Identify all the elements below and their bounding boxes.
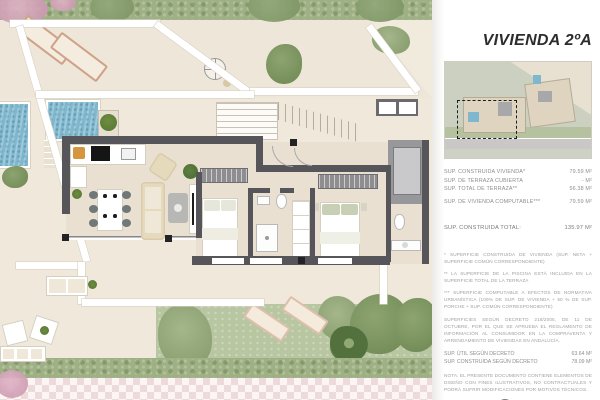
decree-value: 63.64 M² (572, 351, 592, 357)
surface-value: 79.59 M² (570, 169, 592, 176)
floor-plan (0, 0, 432, 400)
surface-total-label: SUP. CONSTRUIDA TOTAL: (444, 225, 521, 231)
dining-table (97, 189, 123, 231)
surface-row: SUP. DE TERRAZA CUBIERTA - M² (444, 178, 592, 185)
terrace-wall (82, 299, 264, 306)
surface-value: 79.59 M² (570, 199, 592, 206)
decree-label: SUP. ÚTIL SEGÚN DECRETO (444, 351, 515, 357)
bush-icon (266, 44, 302, 84)
page-title: VIVIENDA 2ºA (440, 32, 592, 50)
plate-icon (113, 194, 117, 198)
decree-label: SUP. CONSTRUIDA SEGÚN DECRETO (444, 359, 538, 365)
sofa-cushion (145, 187, 161, 209)
plate-icon (103, 194, 107, 198)
surface-label: SUP. DE TERRAZA CUBIERTA (444, 178, 523, 185)
column (290, 139, 297, 146)
nota-text: NOTA: EL PRESENTE DOCUMENTO CONTIENE ELE… (444, 372, 592, 393)
site-pool (533, 75, 542, 84)
surface-value: 56.38 M² (570, 186, 592, 193)
wall (62, 136, 70, 214)
pillow-icon (322, 204, 340, 215)
pillow-icon (221, 200, 236, 211)
boundary-wall (250, 88, 418, 95)
surface-label: SUP. TOTAL DE TERRAZA** (444, 186, 517, 193)
column (298, 257, 305, 264)
nightstand-icon (361, 203, 367, 211)
wall (422, 140, 429, 264)
surface-total-row: SUP. CONSTRUIDA TOTAL: 135.97 M² (444, 225, 592, 231)
sofa-cushion (145, 211, 161, 233)
wardrobe (200, 168, 248, 183)
paved-path (0, 378, 432, 400)
site-plan-thumbnail (444, 61, 592, 159)
wardrobe (318, 174, 378, 189)
blanket-icon (202, 228, 238, 240)
sofa-cushion (3, 349, 14, 359)
toilet-icon (276, 194, 287, 209)
terrace-wall (16, 262, 82, 269)
surface-label: SUP. DE VIVIENDA COMPUTABLE*** (444, 199, 540, 206)
surface-value: - M² (582, 178, 592, 185)
neighbor-pool (0, 102, 30, 168)
surface-info-column: SUP. CONSTRUIDA VIVIENDA* 79.59 M² SUP. … (444, 169, 592, 400)
surface-row: SUP. DE VIVIENDA COMPUTABLE*** 79.59 M² (444, 199, 592, 206)
brochure-page: VIVIENDA 2ºA SUP. CONSTRUIDA VIVIENDA* 7… (0, 0, 600, 400)
window-pane (318, 258, 352, 264)
pergola (216, 102, 278, 140)
basin-icon (402, 242, 408, 248)
shower-drain-icon (265, 236, 269, 240)
planter-bush-icon (100, 114, 117, 131)
chair-icon (89, 205, 98, 213)
outdoor-armchair (2, 320, 29, 347)
window-pane (250, 258, 282, 264)
plant-icon (72, 189, 82, 199)
site-building (524, 78, 576, 128)
closet (292, 200, 310, 258)
chair-icon (122, 205, 131, 213)
elevator-cab (393, 147, 421, 195)
wall (248, 188, 270, 193)
plant-icon (40, 326, 49, 335)
blanket-icon (320, 232, 360, 244)
bush-icon (394, 298, 432, 352)
footnote: *** SUPERFICIE COMPUTABLE A EFECTOS DE N… (444, 289, 592, 310)
chair-icon (122, 191, 131, 199)
decor-icon (174, 204, 182, 212)
sofa-cushion (17, 349, 28, 359)
window-strip (376, 99, 418, 116)
plate-icon (113, 214, 117, 218)
glass-wall (66, 236, 196, 240)
footnote: * SUPERFICIE CONSTRUIDA DE VIVIENDA (SUP… (444, 251, 592, 265)
decree-value: 78.09 M² (572, 359, 592, 365)
page-fold-shadow (432, 0, 444, 400)
chair-icon (89, 219, 98, 227)
plate-icon (103, 214, 107, 218)
wall (256, 165, 386, 172)
hedge-bottom (0, 358, 432, 380)
pillow-icon (341, 204, 358, 215)
footnote: ** LA SUPERFICIE DE LA PISCINA ESTÁ INCL… (444, 270, 592, 284)
footnotes: * SUPERFICIE CONSTRUIDA DE VIVIENDA (SUP… (444, 251, 592, 309)
decree-note: SUPERFICIES SEGÚN DECRETO 218/2005, DE 1… (444, 316, 592, 344)
column (62, 234, 69, 241)
site-roof-detail (538, 91, 551, 103)
wall (386, 165, 391, 262)
window-pane (379, 102, 396, 114)
outdoor-staircase (278, 102, 358, 142)
wall (62, 136, 262, 144)
fridge-cabinet (70, 166, 87, 188)
tv-icon (192, 193, 195, 225)
washbasin-icon (257, 196, 270, 205)
cooktop-icon (91, 146, 110, 161)
wall (248, 190, 253, 260)
site-verge (445, 149, 591, 158)
bush-icon (2, 166, 28, 188)
pillow-icon (204, 200, 220, 211)
decree-row: SUP. CONSTRUIDA SEGÚN DECRETO 78.09 M² (444, 359, 592, 365)
plant-icon (88, 280, 97, 289)
cutting-board-icon (73, 147, 85, 159)
boundary-wall (10, 20, 160, 27)
sofa-cushion (49, 279, 66, 293)
surface-row: SUP. TOTAL DE TERRAZA** 56.38 M² (444, 186, 592, 193)
wall (196, 172, 202, 238)
terrace-wall (36, 91, 254, 98)
window-pane (399, 102, 416, 114)
decree-rows: SUP. ÚTIL SEGÚN DECRETO 63.64 M² SUP. CO… (444, 351, 592, 365)
column (165, 235, 172, 242)
sink-icon (121, 148, 136, 160)
surface-label: SUP. CONSTRUIDA VIVIENDA* (444, 169, 525, 176)
sofa-cushion (31, 349, 42, 359)
window-pane (212, 258, 244, 264)
sofa-cushion (68, 279, 85, 293)
toilet-icon (394, 214, 405, 230)
wall (310, 188, 315, 260)
wall (280, 188, 294, 193)
palm-plant-icon (330, 326, 368, 362)
surface-total-value: 135.97 M² (565, 225, 592, 231)
surface-row: SUP. CONSTRUIDA VIVIENDA* 79.59 M² (444, 169, 592, 176)
unit-highlight-dashed-box (457, 100, 517, 138)
chair-icon (122, 219, 131, 227)
chair-icon (89, 191, 98, 199)
decree-row: SUP. ÚTIL SEGÚN DECRETO 63.64 M² (444, 351, 592, 357)
